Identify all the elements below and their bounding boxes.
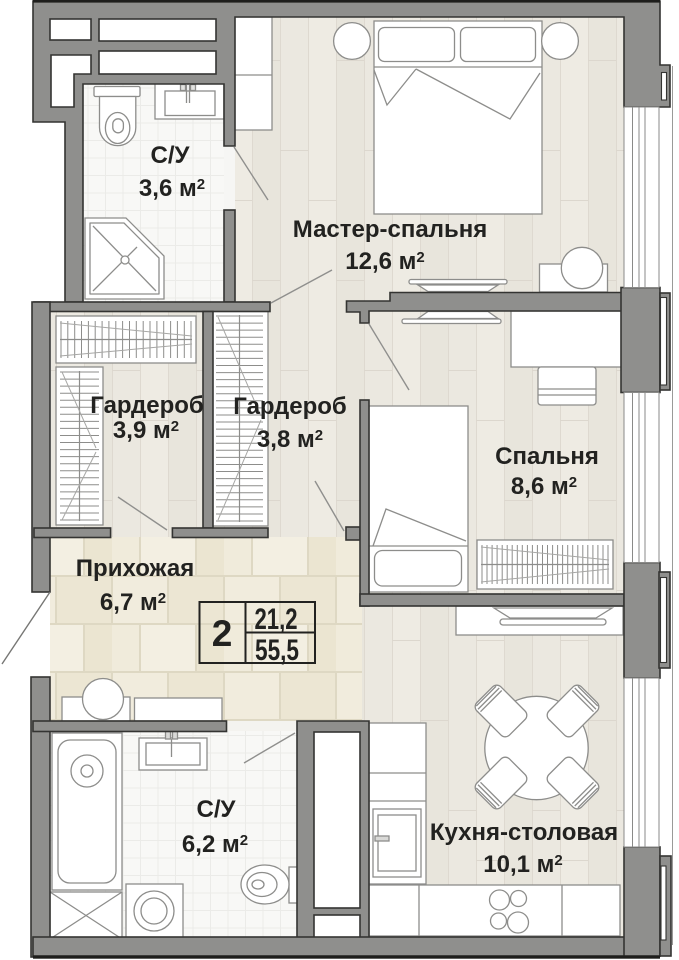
svg-text:55,5: 55,5 xyxy=(255,634,299,667)
svg-text:2: 2 xyxy=(212,613,233,654)
svg-text:6,7 м2: 6,7 м2 xyxy=(100,589,166,616)
svg-text:8,6 м2: 8,6 м2 xyxy=(511,473,577,500)
svg-text:Гардероб: Гардероб xyxy=(90,392,203,419)
svg-text:Спальня: Спальня xyxy=(495,443,599,470)
svg-text:3,8 м2: 3,8 м2 xyxy=(257,426,323,453)
svg-text:3,9 м2: 3,9 м2 xyxy=(113,417,179,444)
svg-text:6,2 м2: 6,2 м2 xyxy=(182,831,248,858)
svg-text:Гардероб: Гардероб xyxy=(233,393,346,420)
svg-text:12,6 м2: 12,6 м2 xyxy=(345,248,424,275)
svg-text:С/У: С/У xyxy=(197,796,237,823)
svg-text:Прихожая: Прихожая xyxy=(76,555,194,582)
svg-text:Кухня-столовая: Кухня-столовая xyxy=(430,819,618,846)
svg-text:3,6 м2: 3,6 м2 xyxy=(139,175,205,202)
svg-text:10,1 м2: 10,1 м2 xyxy=(483,851,562,878)
svg-text:С/У: С/У xyxy=(151,142,191,169)
svg-text:Мастер-спальня: Мастер-спальня xyxy=(293,216,487,243)
svg-text:21,2: 21,2 xyxy=(255,603,298,636)
